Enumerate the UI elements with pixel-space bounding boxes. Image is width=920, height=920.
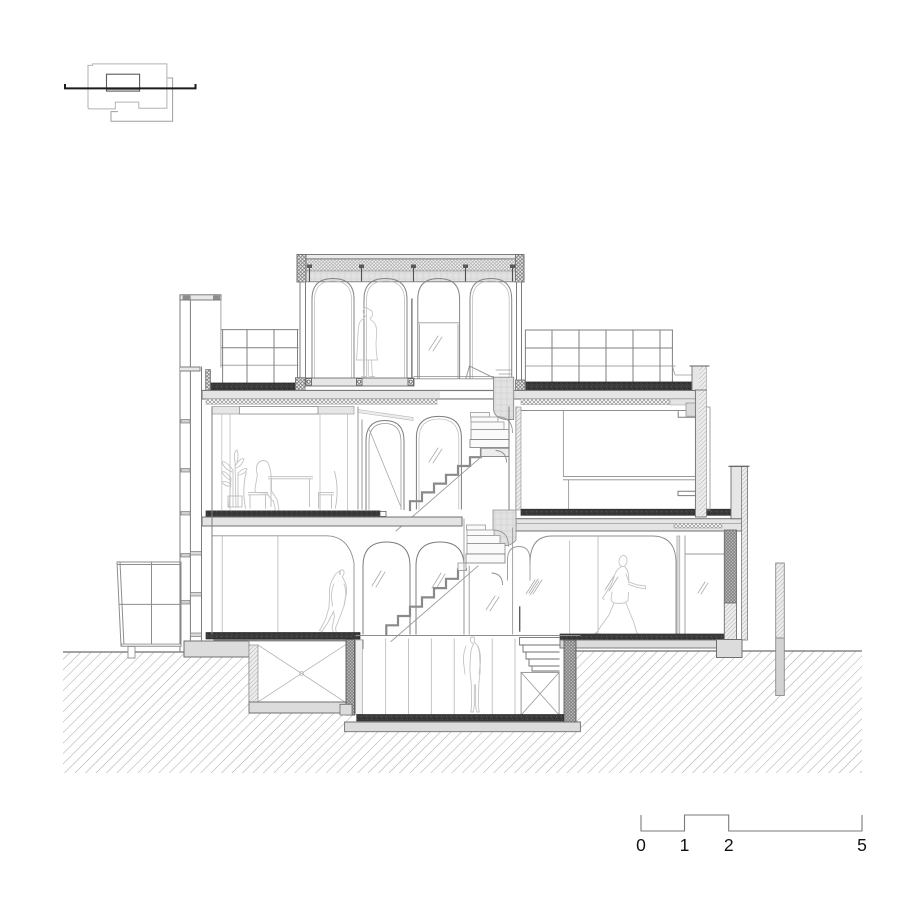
svg-text:2: 2 <box>724 835 734 855</box>
svg-text:5: 5 <box>857 835 867 855</box>
svg-text:1: 1 <box>680 835 690 855</box>
svg-text:0: 0 <box>636 835 646 855</box>
